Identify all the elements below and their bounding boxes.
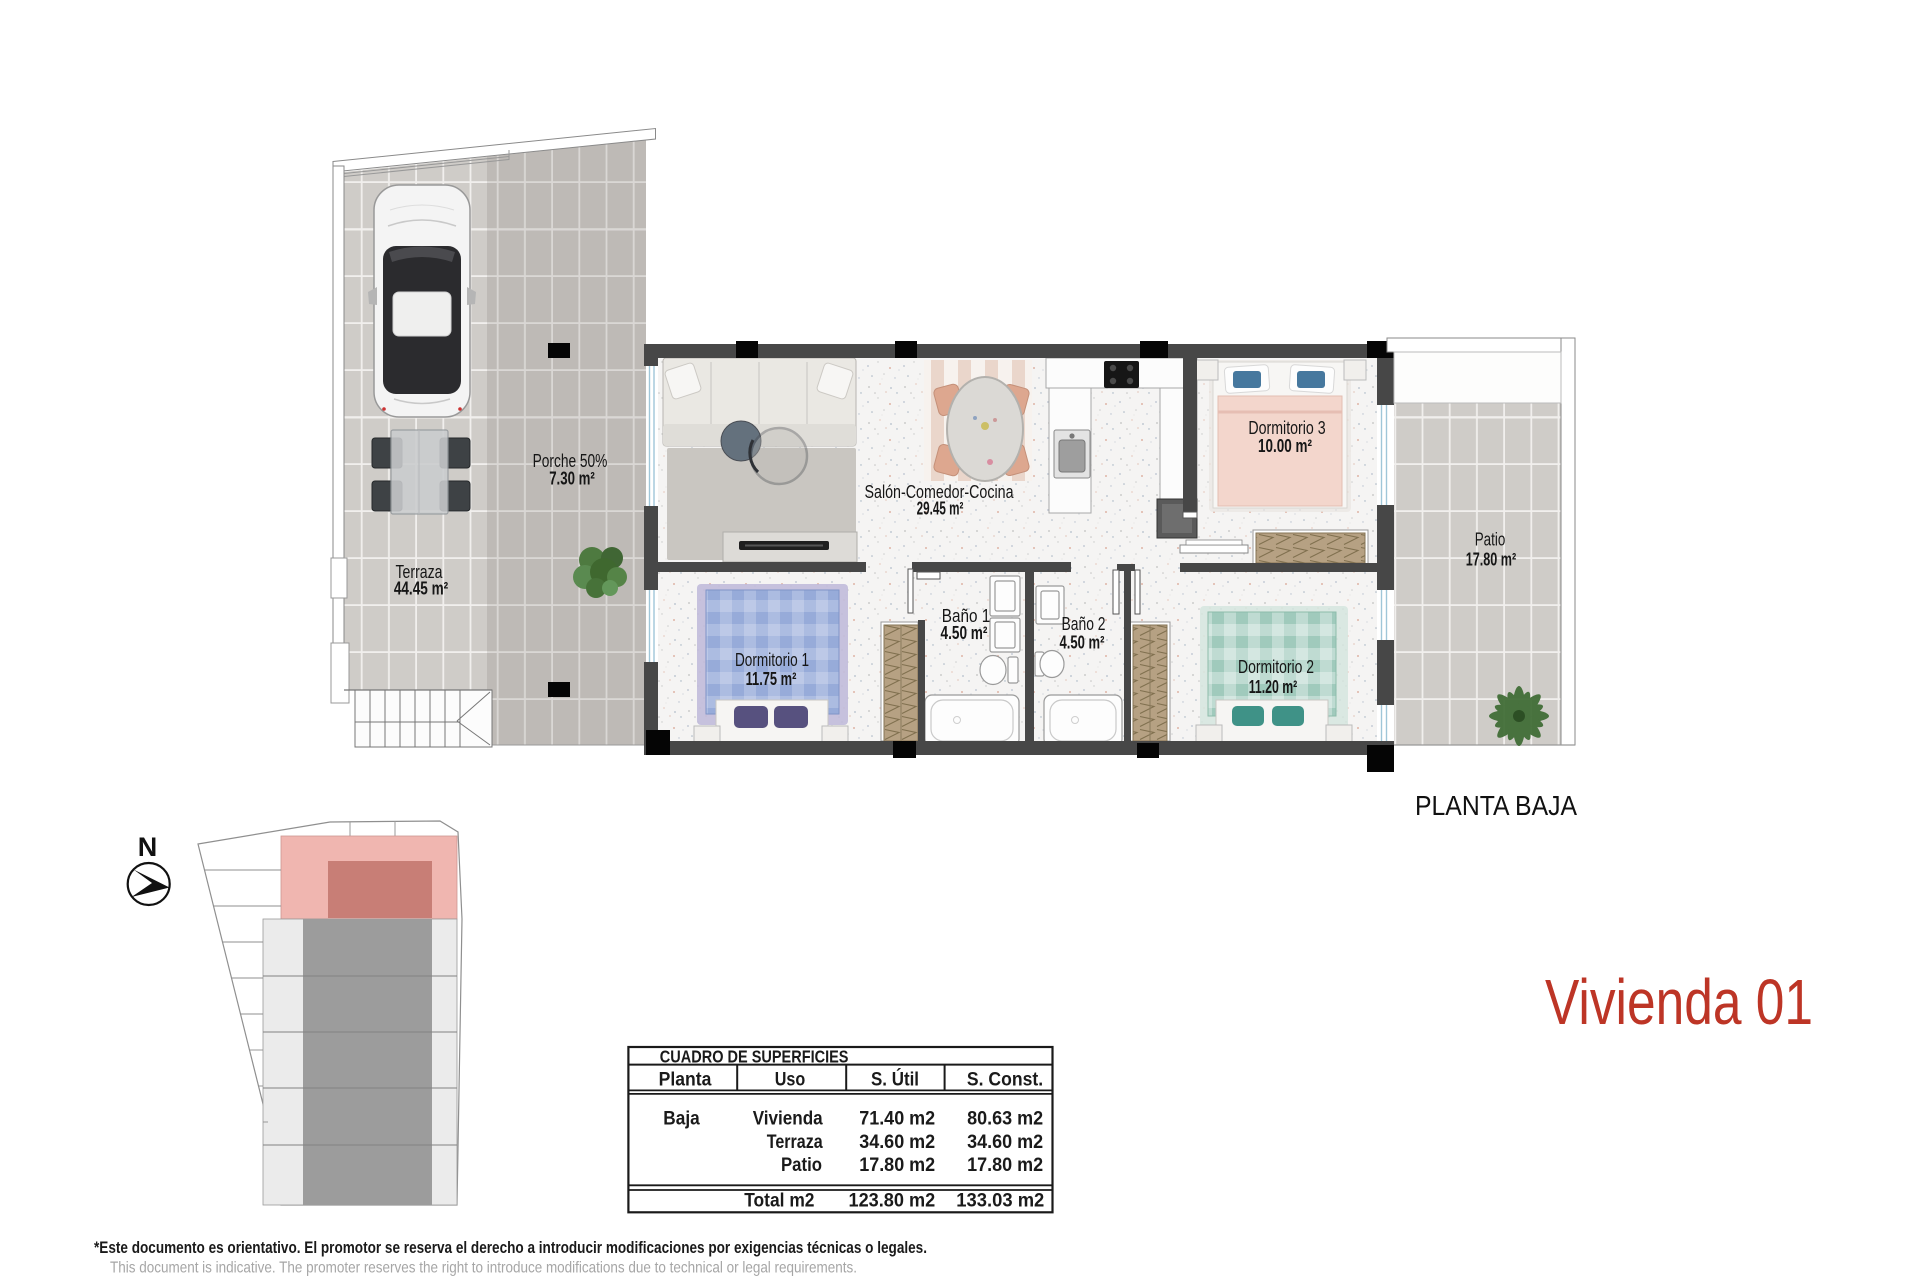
svg-text:S. Const.: S. Const. [967, 1070, 1043, 1091]
svg-text:Uso: Uso [775, 1070, 806, 1091]
svg-text:34.60 m2: 34.60 m2 [967, 1132, 1043, 1153]
svg-text:This document is indicative. T: This document is indicative. The promote… [110, 1260, 857, 1277]
svg-text:34.60 m2: 34.60 m2 [859, 1132, 935, 1153]
svg-text:133.03 m2: 133.03 m2 [956, 1190, 1044, 1211]
svg-text:4.50 m²: 4.50 m² [1060, 633, 1105, 653]
svg-text:17.80 m2: 17.80 m2 [859, 1155, 935, 1176]
svg-text:44.45 m²: 44.45 m² [394, 578, 448, 598]
svg-text:PLANTA BAJA: PLANTA BAJA [1415, 790, 1577, 821]
svg-text:Terraza: Terraza [767, 1132, 823, 1153]
svg-text:Planta: Planta [659, 1070, 712, 1091]
svg-text:Baja: Baja [663, 1108, 700, 1129]
svg-text:Dormitorio 3: Dormitorio 3 [1248, 418, 1325, 438]
svg-text:10.00 m²: 10.00 m² [1258, 436, 1312, 456]
svg-text:CUADRO DE SUPERFICIES: CUADRO DE SUPERFICIES [660, 1046, 849, 1066]
svg-text:29.45 m²: 29.45 m² [917, 499, 964, 519]
svg-text:N: N [138, 832, 158, 862]
svg-text:80.63 m2: 80.63 m2 [967, 1108, 1043, 1129]
svg-text:Patio: Patio [1475, 530, 1506, 550]
svg-text:11.20 m²: 11.20 m² [1249, 677, 1298, 697]
svg-text:S. Útil: S. Útil [871, 1069, 919, 1091]
svg-text:Dormitorio 1: Dormitorio 1 [735, 650, 809, 670]
svg-text:11.75 m²: 11.75 m² [746, 669, 797, 689]
svg-text:Total m2: Total m2 [744, 1190, 814, 1211]
svg-text:7.30 m²: 7.30 m² [549, 469, 595, 489]
svg-text:Vivienda 01: Vivienda 01 [1545, 966, 1813, 1038]
svg-text:Patio: Patio [781, 1155, 822, 1176]
svg-text:Dormitorio 2: Dormitorio 2 [1238, 657, 1314, 677]
svg-text:17.80 m2: 17.80 m2 [967, 1155, 1043, 1176]
svg-text:123.80 m2: 123.80 m2 [849, 1190, 936, 1211]
svg-text:17.80 m²: 17.80 m² [1466, 549, 1516, 569]
svg-text:Baño 2: Baño 2 [1062, 614, 1106, 634]
svg-text:*Este documento es orientativo: *Este documento es orientativo. El promo… [94, 1238, 927, 1257]
svg-text:71.40 m2: 71.40 m2 [859, 1108, 935, 1129]
svg-text:4.50 m²: 4.50 m² [941, 623, 988, 643]
svg-text:Vivienda: Vivienda [753, 1108, 823, 1129]
